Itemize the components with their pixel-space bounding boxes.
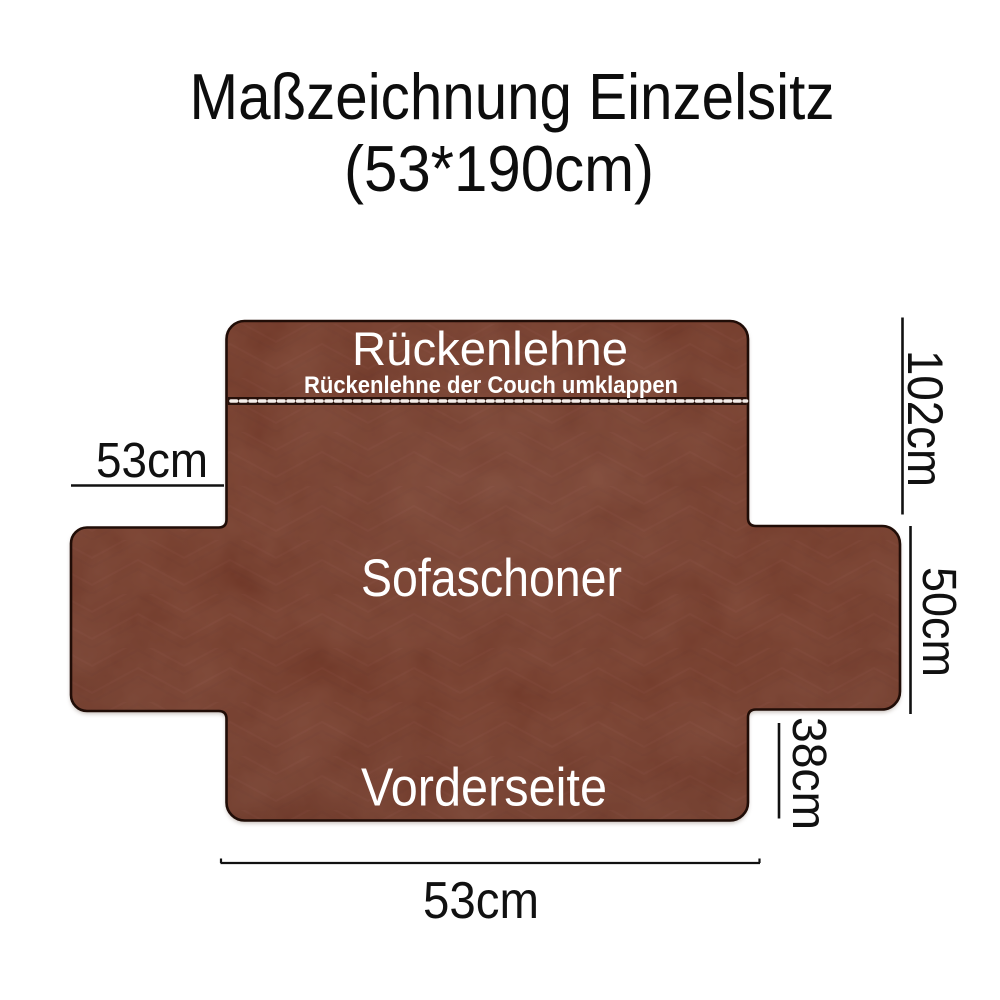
svg-text:(53*190cm): (53*190cm) bbox=[344, 132, 654, 205]
svg-text:53cm: 53cm bbox=[423, 871, 539, 929]
svg-text:Sofaschoner: Sofaschoner bbox=[361, 549, 622, 608]
svg-text:Rückenlehne: Rückenlehne bbox=[352, 322, 628, 375]
svg-text:53cm: 53cm bbox=[96, 434, 208, 488]
svg-text:50cm: 50cm bbox=[912, 567, 965, 677]
svg-text:38cm: 38cm bbox=[782, 717, 835, 830]
svg-text:Maßzeichnung Einzelsitz: Maßzeichnung Einzelsitz bbox=[190, 60, 835, 133]
svg-text:102cm: 102cm bbox=[897, 350, 953, 487]
svg-text:Rückenlehne der Couch umklappe: Rückenlehne der Couch umklappen bbox=[304, 372, 678, 399]
svg-text:Vorderseite: Vorderseite bbox=[361, 758, 607, 818]
